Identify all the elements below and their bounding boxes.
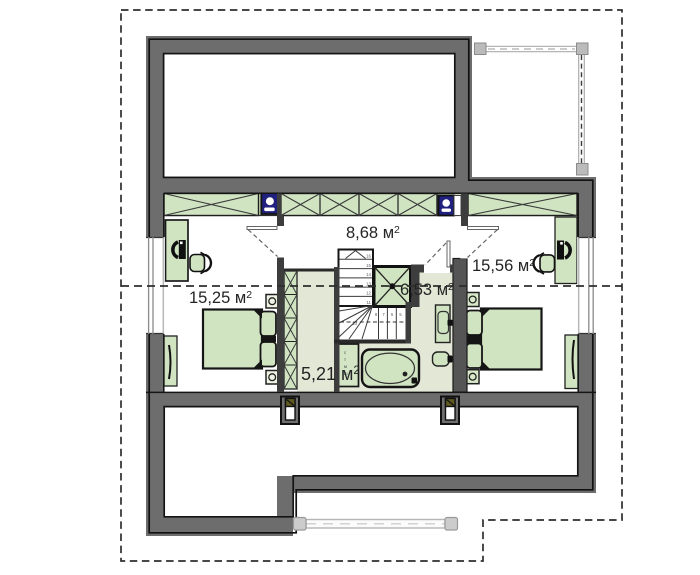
svg-text:15: 15	[366, 263, 371, 268]
svg-text:14: 14	[366, 272, 371, 277]
svg-text:6,53 м2: 6,53 м2	[400, 281, 454, 299]
svg-text:5,21 м2: 5,21 м2	[301, 363, 360, 384]
svg-text:8,68 м2: 8,68 м2	[346, 224, 400, 242]
svg-text:т: т	[344, 357, 346, 362]
svg-text:16: 16	[366, 254, 371, 259]
svg-text:12: 12	[366, 291, 371, 296]
svg-text:11: 11	[366, 300, 371, 305]
svg-text:15,25 м2: 15,25 м2	[189, 289, 252, 307]
svg-text:10: 10	[352, 321, 358, 326]
svg-text:15,56 м2: 15,56 м2	[472, 257, 535, 275]
